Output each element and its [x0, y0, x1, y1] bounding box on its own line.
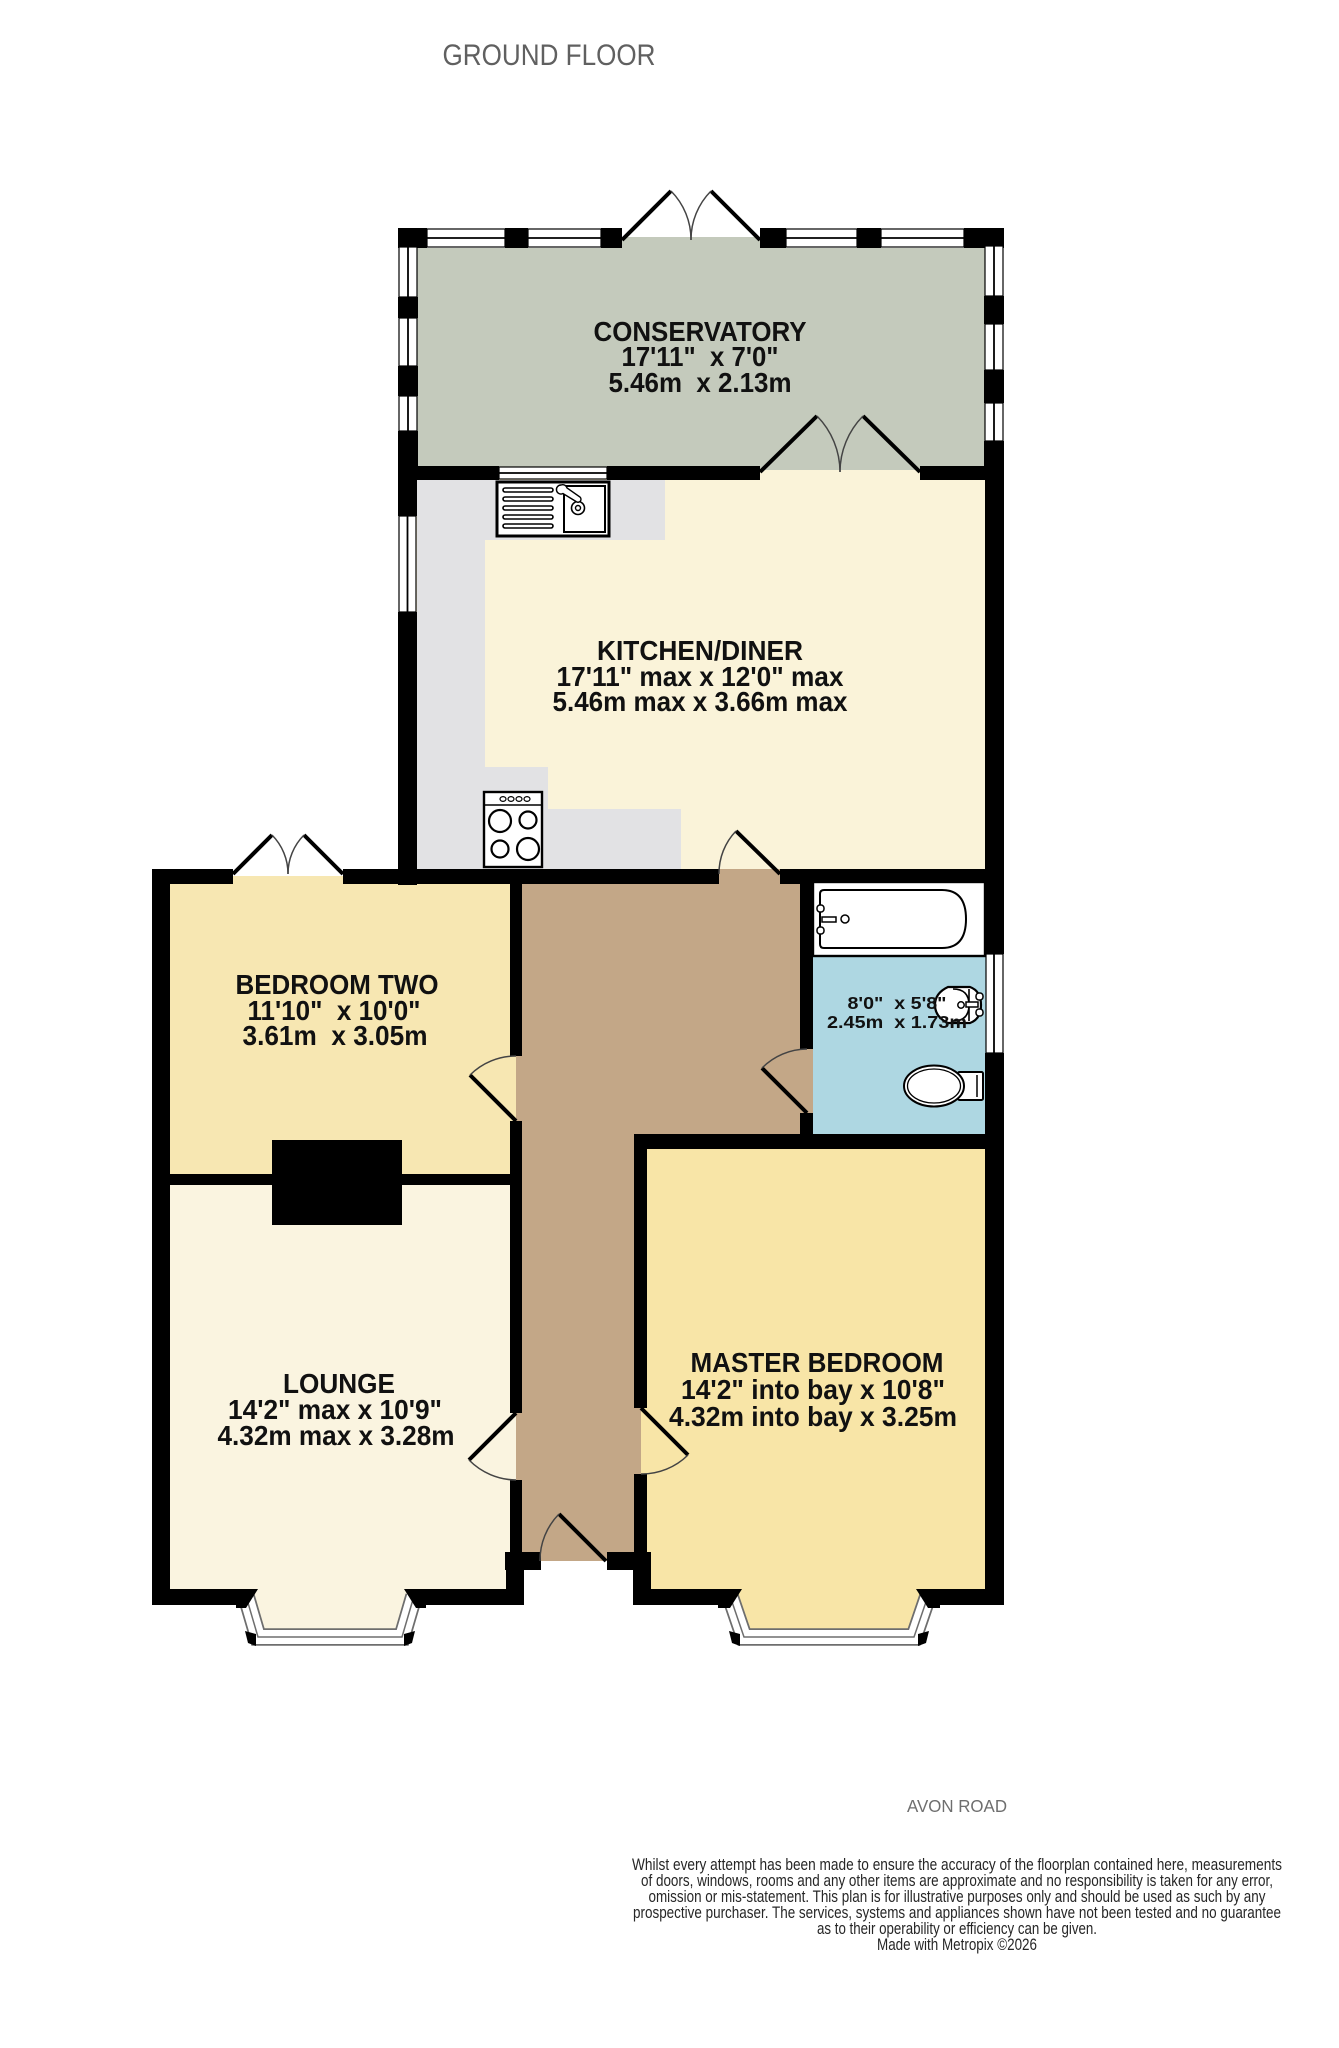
- svg-text:Made with Metropix ©2026: Made with Metropix ©2026: [877, 1936, 1037, 1954]
- svg-text:2.45m x 1.73m: 2.45m x 1.73m: [827, 1012, 967, 1032]
- svg-text:5.46m max x 3.66m max: 5.46m max x 3.66m max: [553, 686, 848, 717]
- svg-text:8'0" x 5'8": 8'0" x 5'8": [848, 993, 947, 1013]
- svg-text:GROUND FLOOR: GROUND FLOOR: [443, 39, 656, 72]
- svg-text:4.32m max x 3.28m: 4.32m max x 3.28m: [218, 1420, 455, 1451]
- svg-text:AVON ROAD: AVON ROAD: [907, 1796, 1007, 1816]
- svg-text:4.32m into bay x 3.25m: 4.32m into bay x 3.25m: [669, 1401, 957, 1432]
- svg-text:5.46m x 2.13m: 5.46m x 2.13m: [609, 367, 792, 398]
- svg-text:3.61m x 3.05m: 3.61m x 3.05m: [243, 1020, 428, 1051]
